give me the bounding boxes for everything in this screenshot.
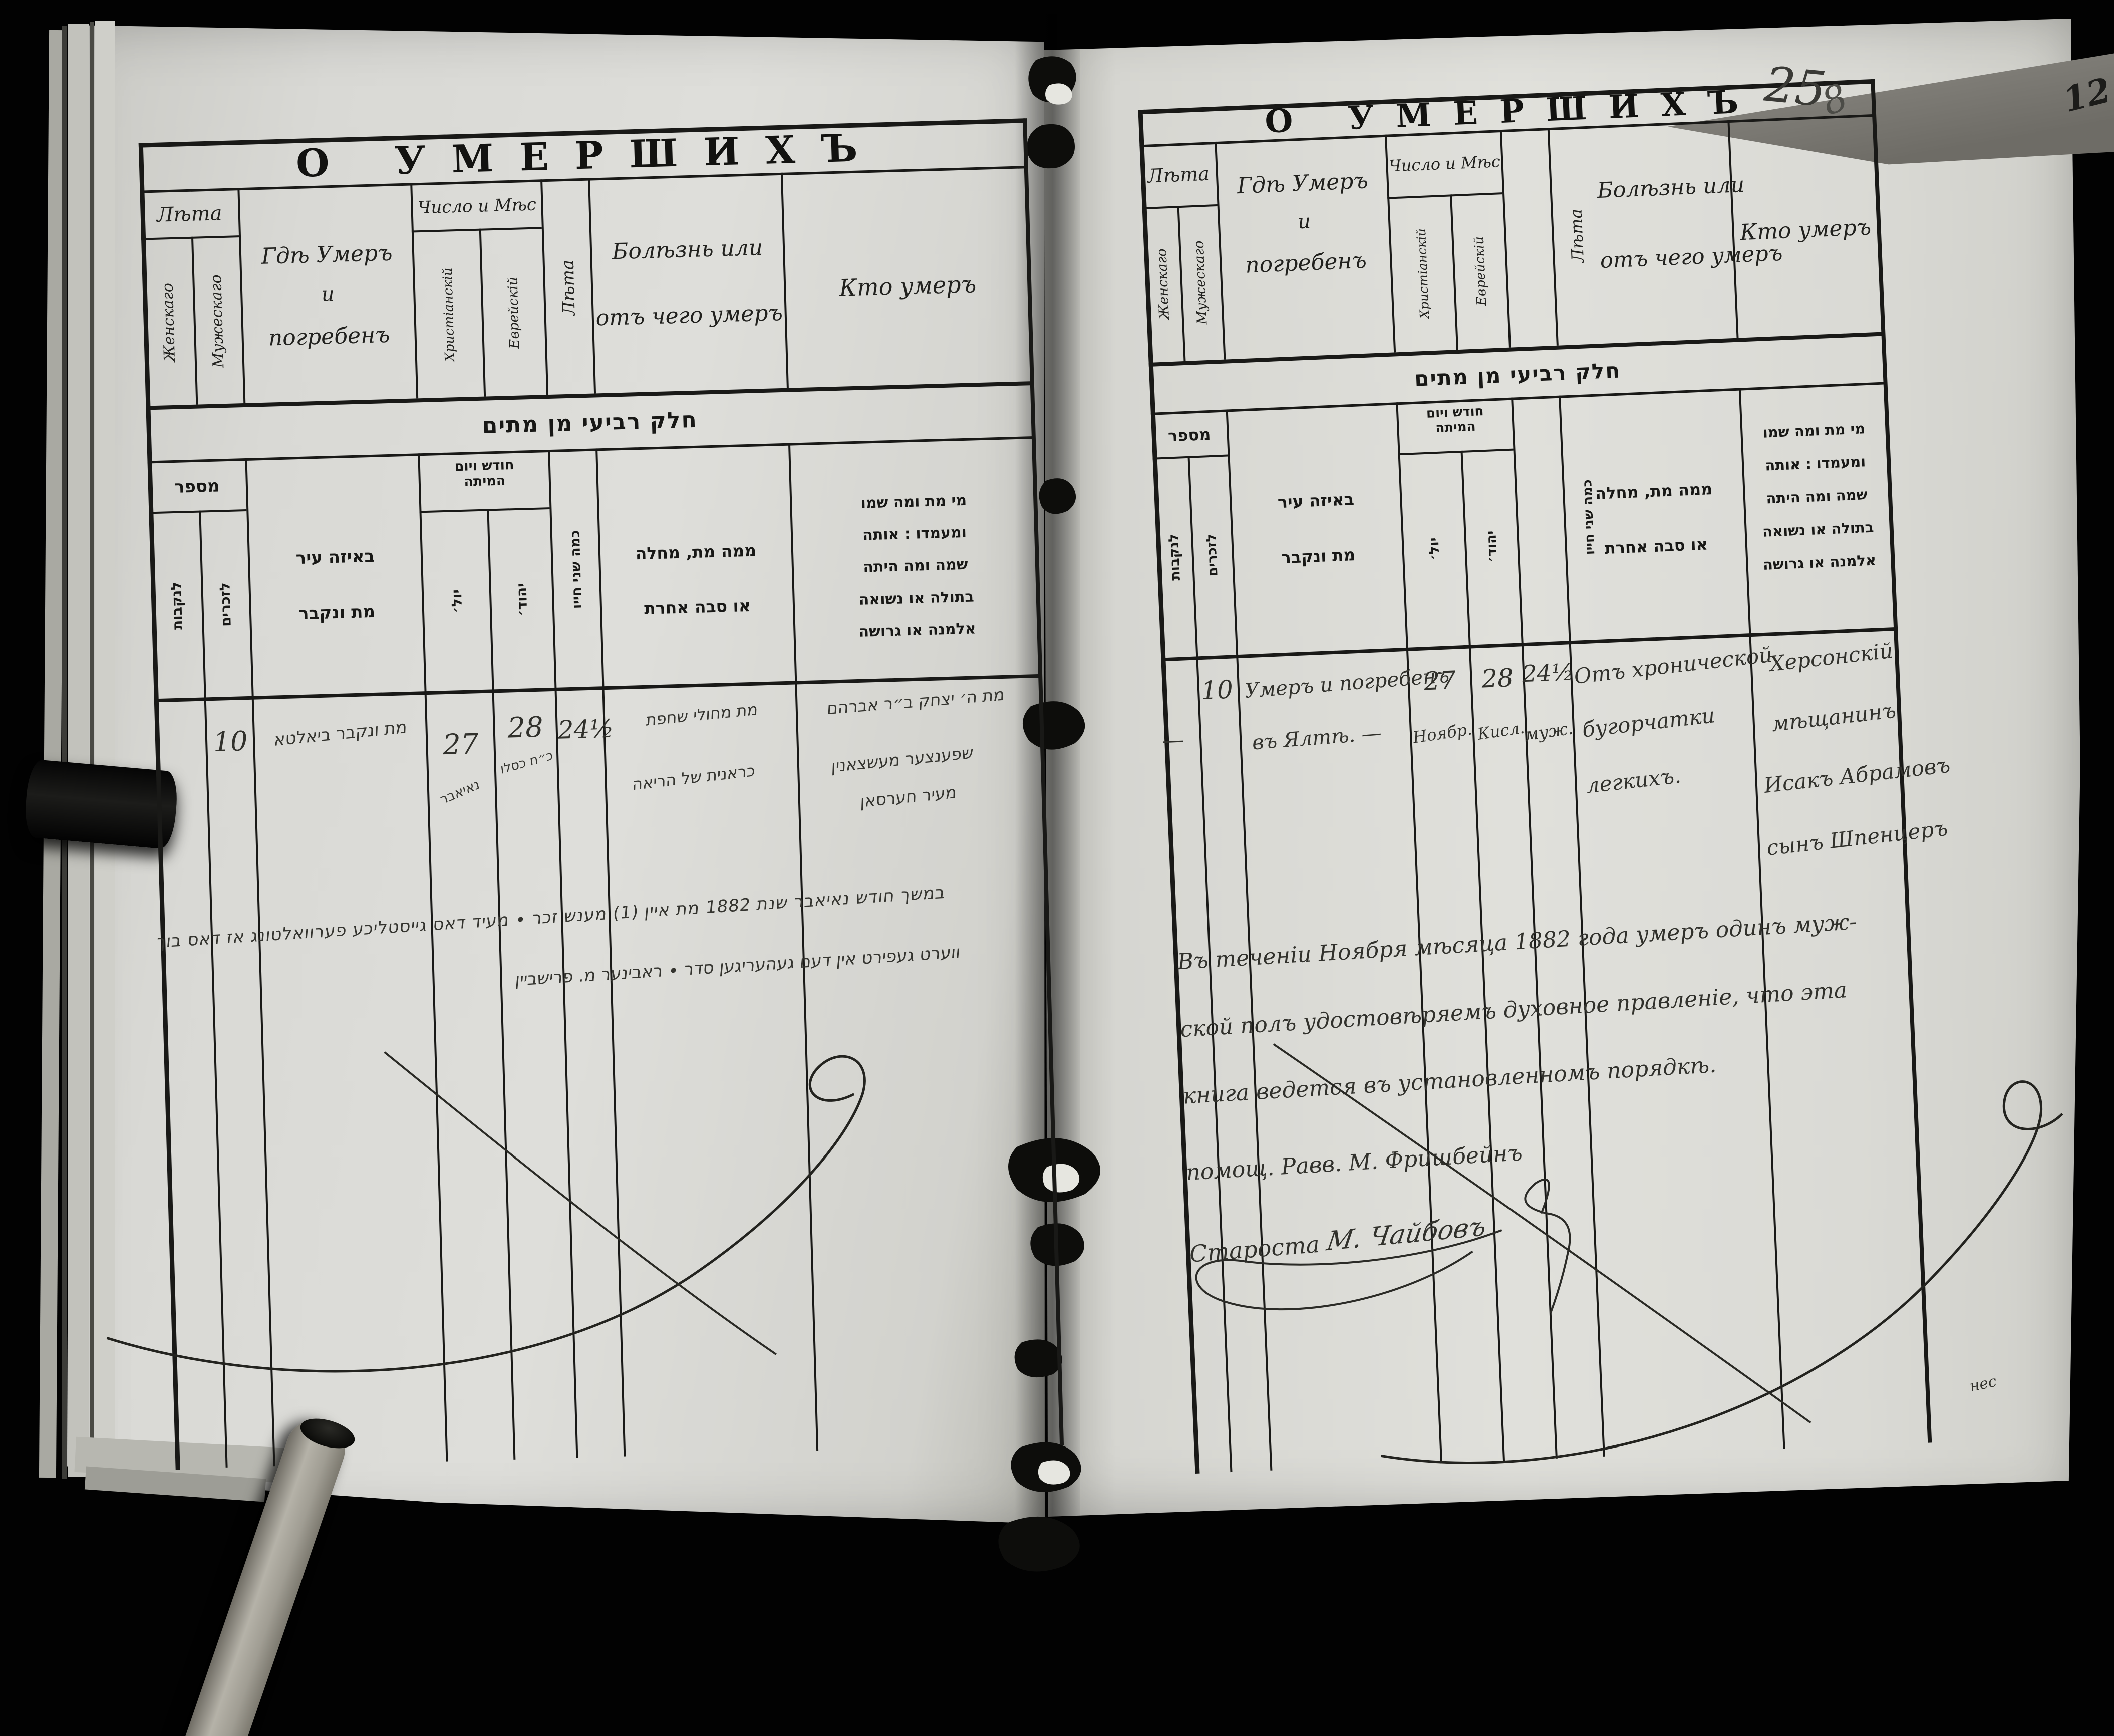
- left-page: О УМЕРШИХЪ Лѣта Женскаго Мужескаго Гдѣ У…: [36, 17, 1093, 1512]
- scanned-book-photo: 12: [0, 0, 2114, 1736]
- right-page-flourish: [1041, 0, 2114, 1498]
- left-page-flourish: [36, 17, 1093, 1512]
- right-page: О УМЕРШИХЪ 25 8 Лѣта Женскаго Мужескаго …: [1041, 0, 2114, 1498]
